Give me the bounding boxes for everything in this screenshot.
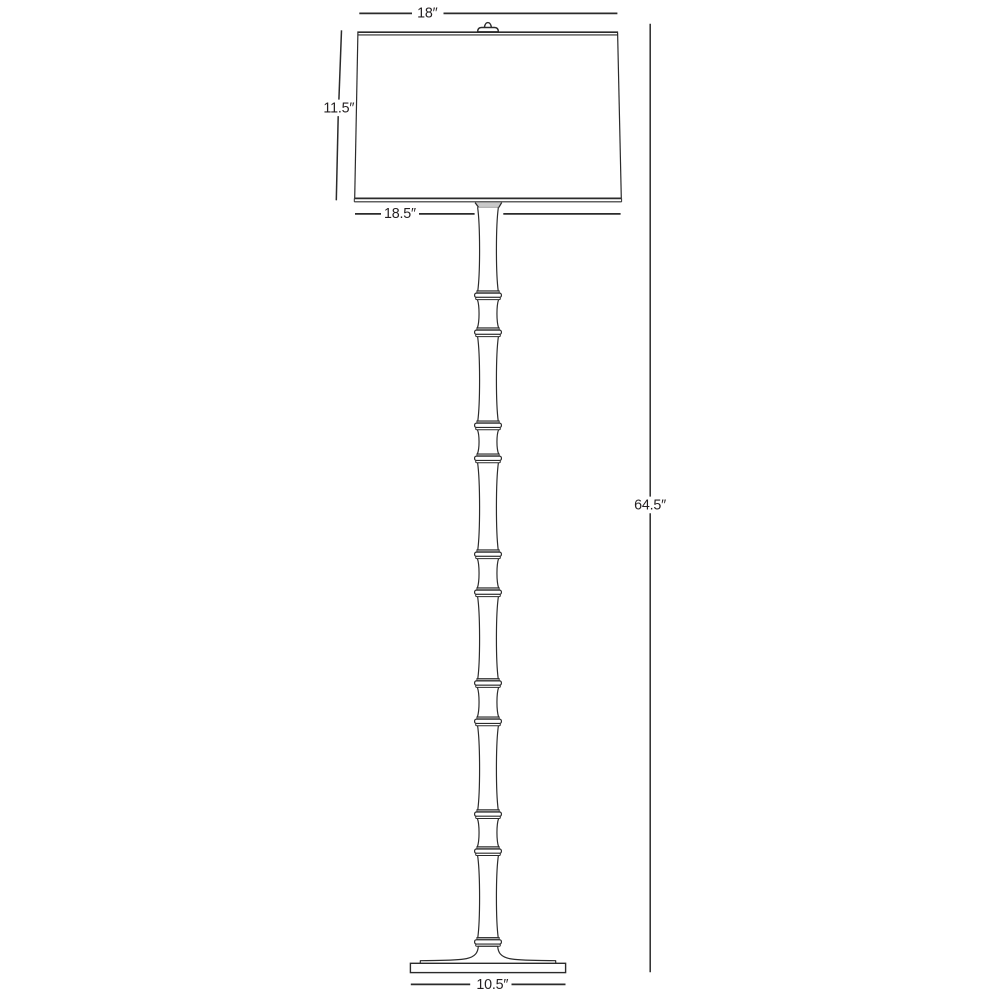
svg-text:10.5″: 10.5″ bbox=[476, 977, 508, 993]
svg-text:11.5″: 11.5″ bbox=[323, 100, 354, 116]
svg-text:18″: 18″ bbox=[417, 6, 438, 22]
svg-text:18.5″: 18.5″ bbox=[384, 206, 416, 222]
svg-text:64.5″: 64.5″ bbox=[634, 498, 666, 514]
